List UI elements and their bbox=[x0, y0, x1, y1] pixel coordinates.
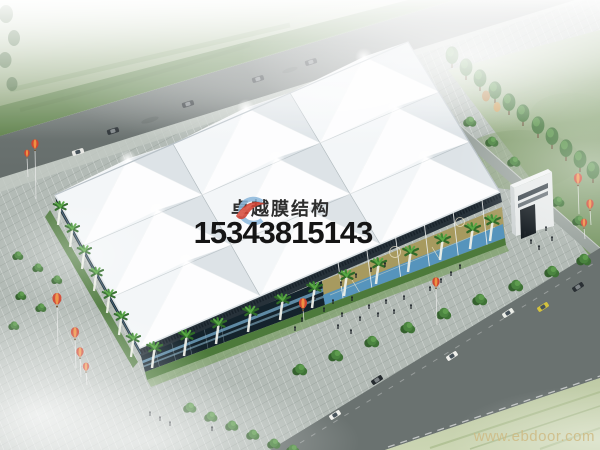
rendering-image: 卓越膜结构 15343815143 www.ebdoor.com bbox=[0, 0, 600, 450]
site-watermark: www.ebdoor.com bbox=[474, 428, 595, 445]
phone-number-watermark: 15343815143 bbox=[193, 217, 373, 248]
